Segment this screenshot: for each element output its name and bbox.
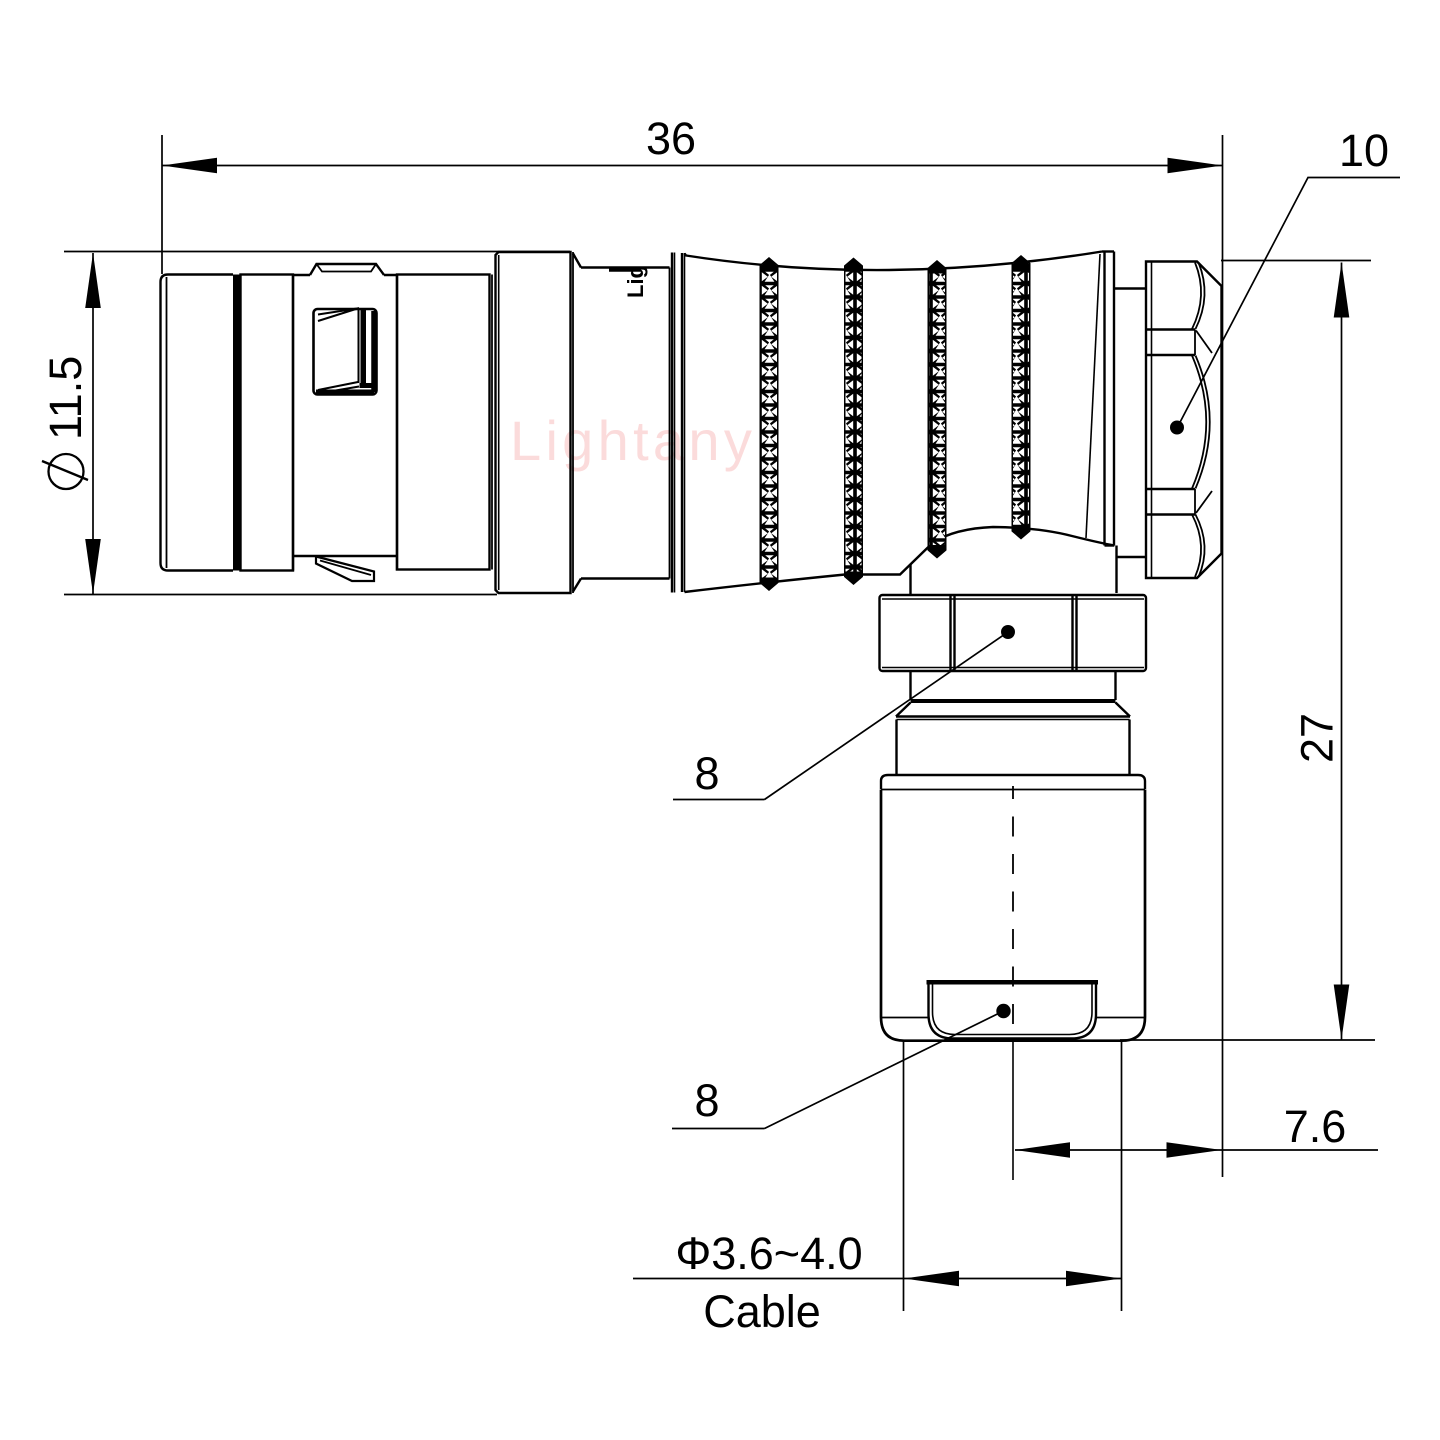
- svg-text:Φ3.6~4.0: Φ3.6~4.0: [675, 1228, 862, 1279]
- svg-text:27: 27: [1292, 713, 1343, 763]
- svg-text:8: 8: [694, 748, 719, 799]
- svg-text:Cable: Cable: [703, 1286, 821, 1337]
- svg-text:Lig: Lig: [623, 265, 648, 298]
- svg-text:8: 8: [694, 1075, 719, 1126]
- svg-text:10: 10: [1339, 125, 1389, 176]
- svg-text:7.6: 7.6: [1284, 1101, 1347, 1152]
- svg-text:11.5: 11.5: [40, 356, 91, 440]
- svg-text:36: 36: [646, 113, 696, 164]
- svg-text:Lightany: Lightany: [510, 409, 756, 472]
